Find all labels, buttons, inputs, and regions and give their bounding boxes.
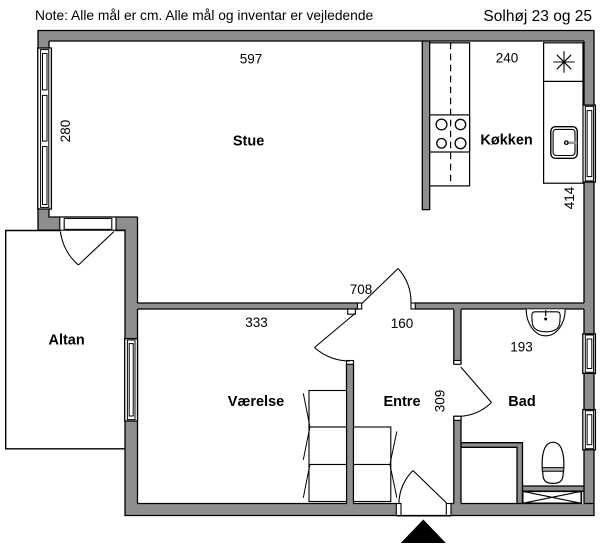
svg-text:Note: Alle mål er cm. Alle mål: Note: Alle mål er cm. Alle mål og invent… [35, 8, 374, 23]
svg-text:414: 414 [562, 186, 577, 209]
svg-text:Bad: Bad [508, 394, 535, 410]
svg-text:Entre: Entre [383, 394, 420, 410]
svg-text:Køkken: Køkken [480, 132, 532, 148]
svg-text:597: 597 [240, 52, 263, 67]
svg-text:309: 309 [432, 390, 447, 413]
svg-text:240: 240 [496, 51, 519, 66]
svg-text:160: 160 [391, 316, 414, 331]
svg-text:Stue: Stue [233, 133, 264, 149]
svg-text:Altan: Altan [48, 333, 84, 349]
svg-text:280: 280 [58, 120, 73, 143]
svg-text:Solhøj 23 og 25: Solhøj 23 og 25 [483, 8, 592, 25]
svg-text:193: 193 [510, 340, 533, 355]
svg-text:333: 333 [245, 315, 268, 330]
svg-text:708: 708 [350, 282, 373, 297]
svg-text:Værelse: Værelse [228, 394, 284, 410]
